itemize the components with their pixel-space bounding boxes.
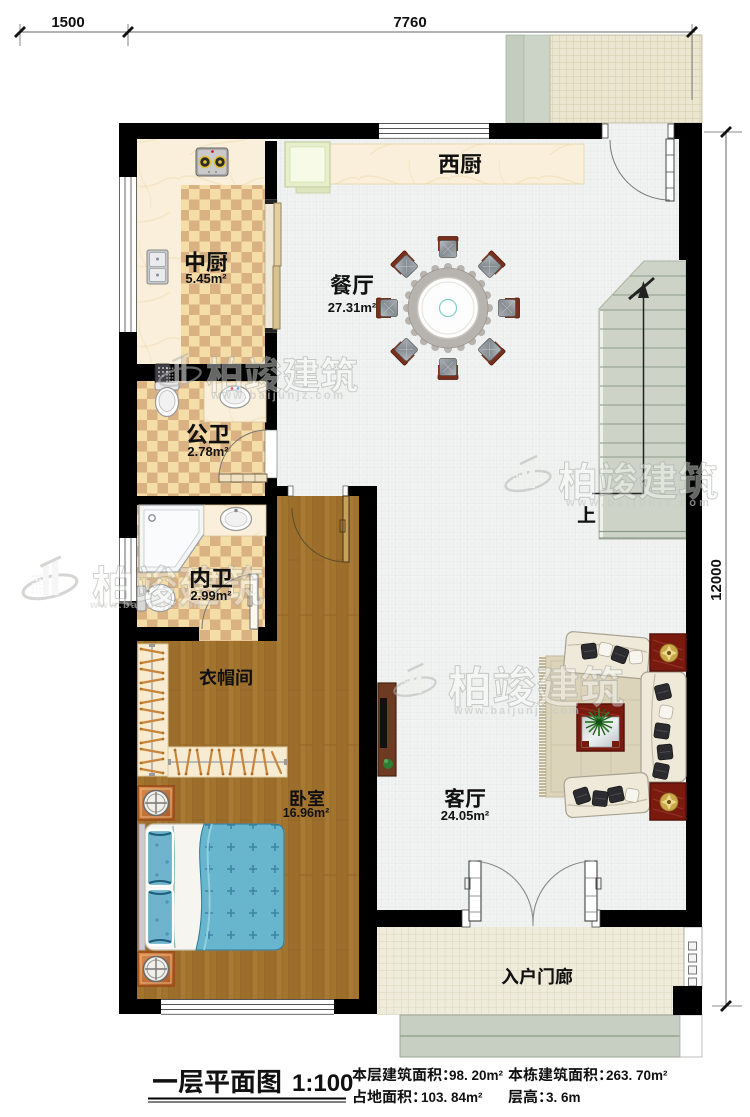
svg-text:5.45m²: 5.45m²	[185, 271, 227, 286]
svg-text:98. 20m²: 98. 20m²	[449, 1068, 504, 1083]
svg-text:www.baijunjz.com: www.baijunjz.com	[453, 705, 581, 717]
svg-text:12000: 12000	[708, 559, 725, 601]
svg-text:1:100: 1:100	[292, 1070, 353, 1097]
svg-text:27.31m²: 27.31m²	[328, 300, 377, 315]
svg-text:263. 70m²: 263. 70m²	[606, 1068, 668, 1083]
svg-text:www.baijunjz.com: www.baijunjz.com	[89, 599, 205, 611]
svg-text:7760: 7760	[393, 14, 426, 31]
svg-text:1500: 1500	[51, 14, 84, 31]
svg-text:24.05m²: 24.05m²	[441, 808, 490, 823]
svg-text:16.96m²: 16.96m²	[283, 806, 330, 820]
svg-text:3. 6m: 3. 6m	[546, 1090, 581, 1105]
svg-text:2.99m²: 2.99m²	[190, 588, 232, 603]
svg-text:103. 84m²: 103. 84m²	[421, 1090, 483, 1105]
svg-text:www.baijunjz.com: www.baijunjz.com	[210, 390, 345, 402]
svg-text:2.78m²: 2.78m²	[187, 444, 229, 459]
